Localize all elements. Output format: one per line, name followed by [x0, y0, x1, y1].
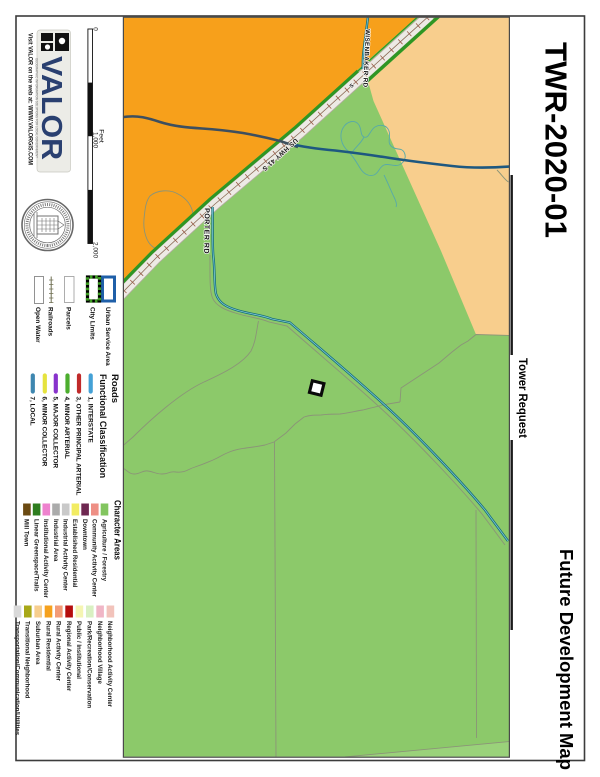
svg-text:VALOR: VALOR [35, 56, 67, 160]
svg-text:Regional Activity Center: Regional Activity Center [65, 621, 72, 692]
svg-text:GEOGRAPHIC INFORMATION SOLUTIO: GEOGRAPHIC INFORMATION SOLUTIONS FOR LOC… [35, 58, 39, 158]
svg-text:Downtown: Downtown [81, 519, 88, 550]
svg-text:Linear Greenspace/Trails: Linear Greenspace/Trails [32, 519, 39, 592]
svg-text:Tower Request: Tower Request [516, 358, 529, 438]
svg-text:Suburban Area: Suburban Area [34, 621, 41, 665]
svg-text:7, LOCAL: 7, LOCAL [29, 397, 36, 426]
svg-text:1, INTERSTATE: 1, INTERSTATE [86, 397, 93, 444]
svg-text:Rural Activity Center: Rural Activity Center [55, 621, 62, 682]
svg-text:TWR-2020-01: TWR-2020-01 [539, 42, 573, 238]
svg-text:Industrial Activity Center: Industrial Activity Center [62, 519, 69, 592]
svg-text:5, MAJOR COLLECTOR: 5, MAJOR COLLECTOR [52, 397, 59, 469]
svg-text:Neighborhood Activity Center: Neighborhood Activity Center [106, 621, 113, 708]
svg-text:2,000: 2,000 [92, 242, 99, 258]
svg-text:Functional Classification: Functional Classification [98, 374, 108, 478]
svg-text:Open Water: Open Water [34, 307, 41, 343]
svg-text:6, MINOR COLLECTOR: 6, MINOR COLLECTOR [41, 397, 48, 467]
svg-text:Urban Service Area: Urban Service Area [104, 307, 111, 366]
svg-text:Institutional Activity Center: Institutional Activity Center [42, 519, 49, 599]
svg-text:City Limits: City Limits [89, 307, 96, 340]
svg-text:Neighborhood Village: Neighborhood Village [96, 621, 103, 684]
svg-text:1,000: 1,000 [92, 132, 99, 148]
svg-text:Public / Institutional: Public / Institutional [75, 621, 82, 679]
svg-text:Mill Town: Mill Town [23, 519, 30, 547]
svg-text:Character Areas: Character Areas [112, 500, 123, 560]
svg-text:Parcels: Parcels [65, 307, 72, 330]
svg-text:Park/Recreation/Conservation: Park/Recreation/Conservation [86, 621, 93, 708]
svg-text:0: 0 [92, 27, 99, 31]
svg-text:Community Activity Center: Community Activity Center [91, 519, 98, 598]
svg-text:Railroads: Railroads [47, 307, 54, 337]
svg-text:PORTER RD: PORTER RD [202, 208, 212, 254]
svg-text:Transitional Neighborhood: Transitional Neighborhood [24, 621, 31, 699]
svg-text:Future Development Map: Future Development Map [556, 549, 577, 770]
svg-text:Agriculture / Forestry: Agriculture / Forestry [100, 519, 107, 582]
svg-text:Rural Residential: Rural Residential [44, 621, 51, 671]
svg-text:Transportation/Communication/U: Transportation/Communication/Utilities [13, 621, 20, 736]
svg-text:Industrial Area: Industrial Area [52, 519, 59, 562]
svg-text:Roads: Roads [109, 374, 120, 403]
svg-text:Visit VALOR on the web at: WWW: Visit VALOR on the web at: WWW.VALORGIS.… [27, 33, 34, 165]
svg-text:3, OTHER PRINCIPAL ARTERIAL: 3, OTHER PRINCIPAL ARTERIAL [75, 397, 82, 496]
svg-text:Established Residential: Established Residential [71, 519, 78, 588]
svg-text:4, MINOR ARTERIAL: 4, MINOR ARTERIAL [63, 397, 70, 459]
